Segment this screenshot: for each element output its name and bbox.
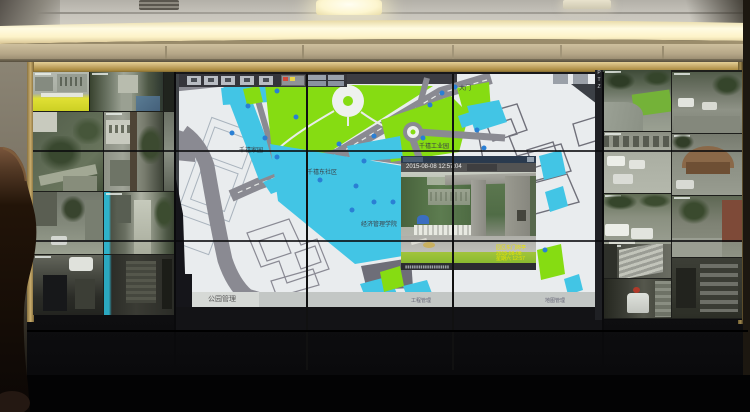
svg-text:千禧东社区: 千禧东社区 [307, 168, 337, 176]
svg-text:大门: 大门 [459, 84, 471, 92]
svg-text:经济管理学院: 经济管理学院 [361, 220, 397, 228]
svg-text:千禧工业园: 千禧工业园 [419, 142, 449, 150]
